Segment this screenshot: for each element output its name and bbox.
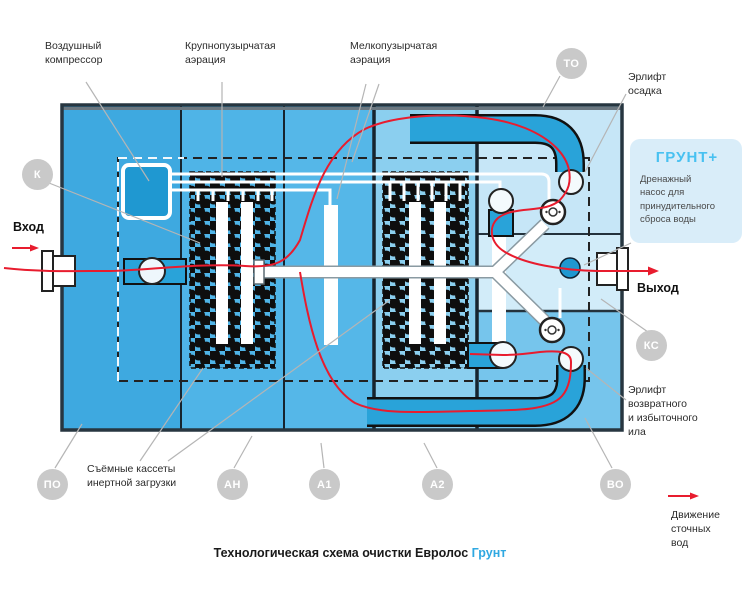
air-compressor bbox=[123, 165, 170, 218]
label-coarse-aeration: Крупнопузырчатая аэрация bbox=[185, 40, 276, 68]
cassette1-tube-1 bbox=[216, 202, 228, 344]
grunt-plus-info-box: ГРУНТ+ Дренажный насос для принудительно… bbox=[630, 139, 742, 243]
treatment-scheme-canvas: Воздушный компрессор Крупнопузырчатая аэ… bbox=[0, 0, 746, 600]
leader-badge-to bbox=[543, 76, 560, 107]
leader-badge-a1 bbox=[321, 443, 324, 468]
badge-a1: А1 bbox=[309, 469, 340, 500]
leader-badge-a2 bbox=[424, 443, 437, 468]
badge-po: ПО bbox=[37, 469, 68, 500]
inlet-arrowhead bbox=[30, 245, 39, 252]
badge-to: ТО bbox=[556, 48, 587, 79]
label-fine-aeration: Мелкопузырчатая аэрация bbox=[350, 40, 437, 68]
transfer-pipe-po-an bbox=[124, 258, 186, 284]
scheme-title-main: Технологическая схема очистки Евролос bbox=[214, 546, 469, 560]
legend-arrowhead bbox=[690, 493, 699, 500]
label-outlet: Выход bbox=[637, 281, 679, 295]
label-airlift-sludge: Эрлифт осадка bbox=[628, 71, 666, 99]
badge-ks: КС bbox=[636, 330, 667, 361]
outlet-arrowhead bbox=[648, 267, 659, 276]
label-inlet: Вход bbox=[13, 220, 44, 234]
label-compressor: Воздушный компрессор bbox=[45, 40, 102, 68]
label-cassettes: Съёмные кассеты инертной загрузки bbox=[87, 463, 176, 491]
sludge-intake-cylinder bbox=[489, 189, 513, 213]
leader-badge-an bbox=[234, 436, 252, 468]
badge-a2: А2 bbox=[422, 469, 453, 500]
main-pipe-cap bbox=[254, 260, 264, 284]
outlet-assembly bbox=[597, 248, 628, 290]
scheme-title-brand: Грунт bbox=[472, 546, 507, 560]
badge-an: АН bbox=[217, 469, 248, 500]
badge-vo: ВО bbox=[600, 469, 631, 500]
sludge-airlift-mouth bbox=[559, 170, 583, 194]
grunt-plus-title: ГРУНТ+ bbox=[640, 149, 734, 166]
outlet-flange bbox=[617, 248, 628, 290]
legend-flow-text: Движение сточных вод bbox=[671, 508, 720, 551]
grunt-plus-body: Дренажный насос для принудительного сбро… bbox=[640, 173, 734, 226]
cassette1-tube-2 bbox=[241, 202, 253, 344]
lower-valve bbox=[540, 318, 564, 342]
label-airlift-return: Эрлифт возвратного и избыточного ила bbox=[628, 384, 698, 439]
scheme-title: Технологическая схема очистки Евролос Гр… bbox=[120, 546, 600, 560]
badge-k: К bbox=[22, 159, 53, 190]
